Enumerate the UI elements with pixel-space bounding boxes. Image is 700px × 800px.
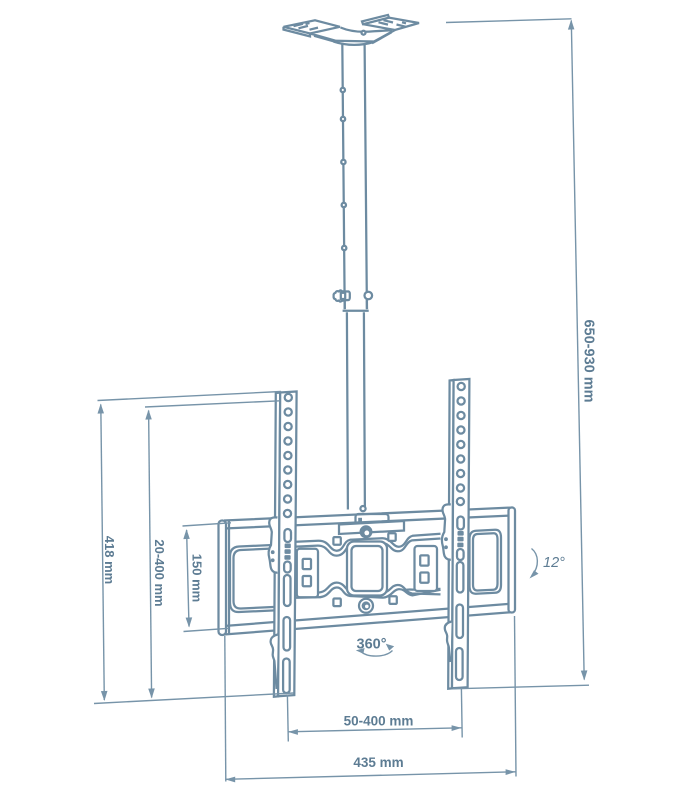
svg-text:435 mm: 435 mm bbox=[353, 755, 403, 770]
svg-text:150 mm: 150 mm bbox=[190, 554, 205, 602]
svg-text:50-400 mm: 50-400 mm bbox=[344, 714, 414, 729]
svg-text:650-930 mm: 650-930 mm bbox=[581, 319, 597, 402]
svg-text:418 mm: 418 mm bbox=[102, 536, 117, 584]
svg-text:12°: 12° bbox=[543, 555, 565, 571]
svg-text:20-400 mm: 20-400 mm bbox=[152, 539, 167, 606]
